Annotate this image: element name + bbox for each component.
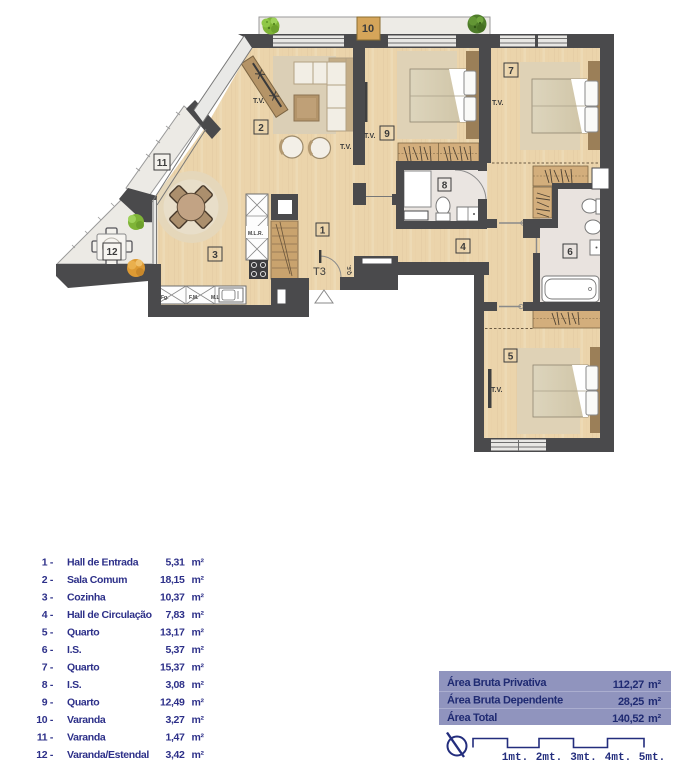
svg-text:Hall de Entrada: Hall de Entrada <box>67 557 139 569</box>
svg-text:3,42: 3,42 <box>165 749 185 761</box>
svg-text:m²: m² <box>648 713 661 725</box>
svg-text:m²: m² <box>192 714 205 726</box>
svg-text:6 -: 6 - <box>42 644 54 656</box>
svg-text:1: 1 <box>320 226 326 237</box>
svg-text:15,37: 15,37 <box>160 662 185 674</box>
svg-text:T.V.: T.V. <box>364 133 375 140</box>
svg-text:m²: m² <box>192 627 205 639</box>
svg-text:T.V.: T.V. <box>340 144 351 151</box>
svg-text:Área Bruta Privativa: Área Bruta Privativa <box>447 676 547 689</box>
svg-text:11: 11 <box>157 158 168 169</box>
svg-text:2mt.: 2mt. <box>536 752 562 764</box>
svg-text:Varanda: Varanda <box>67 714 106 726</box>
svg-text:Quarto: Quarto <box>67 697 99 709</box>
svg-text:Área Total: Área Total <box>447 711 497 724</box>
svg-text:2 -: 2 - <box>42 574 54 586</box>
svg-text:13,17: 13,17 <box>160 627 185 639</box>
svg-text:m²: m² <box>192 697 205 709</box>
svg-text:Fg.: Fg. <box>161 295 169 301</box>
svg-text:Área Bruta Dependente: Área Bruta Dependente <box>447 694 563 707</box>
svg-text:7: 7 <box>508 66 514 77</box>
svg-text:3 -: 3 - <box>42 592 54 604</box>
svg-text:m²: m² <box>648 679 661 691</box>
svg-text:M.L.R.: M.L.R. <box>248 231 264 237</box>
svg-text:18,15: 18,15 <box>160 574 185 586</box>
svg-text:8: 8 <box>442 181 448 192</box>
svg-text:1,47: 1,47 <box>165 732 185 744</box>
svg-text:m²: m² <box>192 679 205 691</box>
svg-text:m²: m² <box>192 574 205 586</box>
svg-text:m²: m² <box>648 696 661 708</box>
svg-text:112,27: 112,27 <box>613 679 644 691</box>
svg-text:28,25: 28,25 <box>618 696 644 708</box>
svg-text:4: 4 <box>460 242 466 253</box>
svg-text:Q.E.: Q.E. <box>347 264 353 275</box>
svg-text:11 -: 11 - <box>37 732 54 744</box>
svg-text:1 -: 1 - <box>42 557 54 569</box>
svg-text:m²: m² <box>192 609 205 621</box>
svg-text:12 -: 12 - <box>36 749 54 761</box>
svg-text:T.V.: T.V. <box>491 387 502 394</box>
svg-text:3,27: 3,27 <box>165 714 185 726</box>
svg-text:12: 12 <box>106 247 118 258</box>
svg-text:9 -: 9 - <box>42 697 54 709</box>
svg-text:3mt.: 3mt. <box>570 752 596 764</box>
svg-text:4mt.: 4mt. <box>605 752 631 764</box>
svg-text:I.S.: I.S. <box>67 679 82 691</box>
svg-text:3: 3 <box>212 250 218 261</box>
svg-text:F.M.: F.M. <box>189 295 199 301</box>
svg-text:m²: m² <box>192 662 205 674</box>
svg-text:12,49: 12,49 <box>160 697 185 709</box>
svg-text:T.V.: T.V. <box>492 100 503 107</box>
svg-text:140,52: 140,52 <box>612 713 644 725</box>
svg-text:Hall de Circulação: Hall de Circulação <box>67 609 152 621</box>
svg-text:Sala Comum: Sala Comum <box>67 574 127 586</box>
svg-text:Quarto: Quarto <box>67 662 99 674</box>
svg-text:1mt.: 1mt. <box>502 752 528 764</box>
svg-text:5 -: 5 - <box>42 627 54 639</box>
svg-text:m²: m² <box>192 732 205 744</box>
svg-text:5,31: 5,31 <box>165 557 185 569</box>
svg-text:3,08: 3,08 <box>165 679 185 691</box>
svg-text:6: 6 <box>567 247 573 258</box>
svg-text:I.S.: I.S. <box>67 644 82 656</box>
svg-text:5,37: 5,37 <box>165 644 185 656</box>
svg-text:m²: m² <box>192 557 205 569</box>
svg-text:Cozinha: Cozinha <box>67 592 106 604</box>
svg-text:m²: m² <box>192 644 205 656</box>
svg-text:7 -: 7 - <box>42 662 54 674</box>
svg-text:Quarto: Quarto <box>67 627 99 639</box>
svg-text:m²: m² <box>192 749 205 761</box>
svg-text:5: 5 <box>508 352 514 363</box>
svg-text:10 -: 10 - <box>36 714 54 726</box>
svg-text:2: 2 <box>258 123 264 134</box>
svg-text:Varanda/Estendal: Varanda/Estendal <box>67 749 149 761</box>
svg-text:T.V.: T.V. <box>253 98 264 105</box>
svg-text:m²: m² <box>192 592 205 604</box>
svg-text:10: 10 <box>362 23 374 35</box>
svg-text:10,37: 10,37 <box>160 592 185 604</box>
svg-text:8 -: 8 - <box>42 679 54 691</box>
svg-text:Varanda: Varanda <box>67 732 106 744</box>
svg-text:4 -: 4 - <box>42 609 54 621</box>
svg-text:9: 9 <box>384 129 390 140</box>
svg-text:5mt.: 5mt. <box>639 752 665 764</box>
svg-text:T3: T3 <box>313 266 326 278</box>
svg-text:7,83: 7,83 <box>165 609 185 621</box>
